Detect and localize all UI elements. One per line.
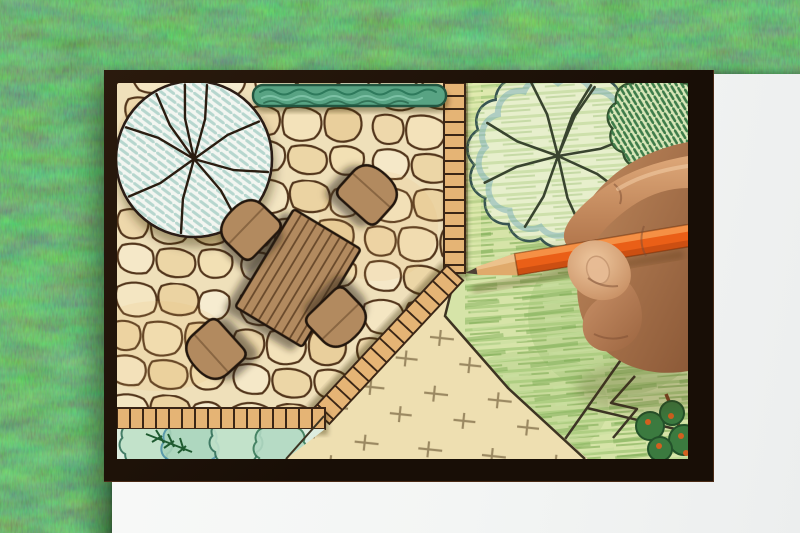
plan-border-frame bbox=[104, 70, 714, 482]
garden-plan-drawing bbox=[117, 83, 688, 459]
garden-plan-photo bbox=[0, 0, 800, 533]
plan-svg bbox=[117, 83, 688, 459]
hedge-row bbox=[253, 85, 446, 106]
